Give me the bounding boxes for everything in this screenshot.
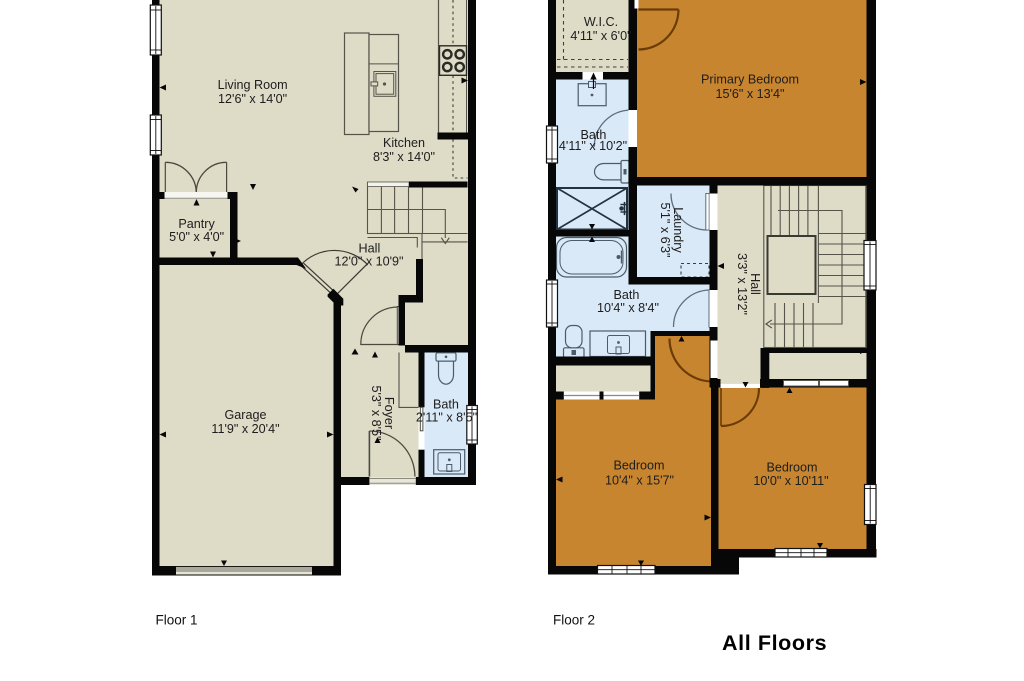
svg-text:Bath: Bath bbox=[433, 398, 459, 412]
svg-text:5'3" x 8'5": 5'3" x 8'5" bbox=[369, 385, 383, 440]
svg-text:Floor 1: Floor 1 bbox=[156, 613, 198, 628]
svg-text:Hall: Hall bbox=[359, 242, 381, 256]
svg-text:Bath: Bath bbox=[614, 288, 640, 302]
svg-text:11'9" x 20'4": 11'9" x 20'4" bbox=[211, 422, 279, 436]
svg-text:4'11" x 6'0": 4'11" x 6'0" bbox=[570, 29, 631, 43]
svg-text:10'0" x 10'11": 10'0" x 10'11" bbox=[753, 474, 828, 488]
svg-text:Kitchen: Kitchen bbox=[383, 136, 425, 150]
svg-text:2'11" x 8'5": 2'11" x 8'5" bbox=[416, 411, 477, 425]
svg-text:All Floors: All Floors bbox=[722, 631, 827, 655]
svg-text:12'6" x 14'0": 12'6" x 14'0" bbox=[218, 92, 287, 106]
svg-text:Laundry: Laundry bbox=[671, 207, 685, 253]
svg-text:4'11" x 10'2": 4'11" x 10'2" bbox=[559, 139, 627, 153]
svg-text:W.I.C.: W.I.C. bbox=[584, 15, 618, 29]
svg-text:10'4" x 8'4": 10'4" x 8'4" bbox=[597, 301, 659, 315]
svg-text:8'3" x 14'0": 8'3" x 14'0" bbox=[373, 150, 435, 164]
svg-text:5'1" x 6'3": 5'1" x 6'3" bbox=[658, 202, 672, 257]
svg-text:Living Room: Living Room bbox=[218, 78, 288, 92]
svg-text:5'0" x 4'0": 5'0" x 4'0" bbox=[169, 230, 224, 244]
svg-text:Foyer: Foyer bbox=[382, 397, 396, 429]
svg-text:15'6" x 13'4": 15'6" x 13'4" bbox=[715, 87, 784, 101]
svg-text:Floor 2: Floor 2 bbox=[553, 613, 595, 628]
svg-text:Bedroom: Bedroom bbox=[613, 459, 664, 473]
svg-text:3'3" x 13'2": 3'3" x 13'2" bbox=[735, 253, 749, 315]
svg-text:10'4" x 15'7": 10'4" x 15'7" bbox=[605, 474, 674, 488]
svg-text:Hall: Hall bbox=[748, 273, 762, 295]
svg-text:Bedroom: Bedroom bbox=[766, 461, 817, 475]
svg-text:Pantry: Pantry bbox=[178, 217, 215, 231]
svg-text:Primary Bedroom: Primary Bedroom bbox=[701, 73, 799, 87]
svg-text:Garage: Garage bbox=[224, 408, 266, 422]
svg-text:12'0" x 10'9": 12'0" x 10'9" bbox=[334, 255, 403, 269]
